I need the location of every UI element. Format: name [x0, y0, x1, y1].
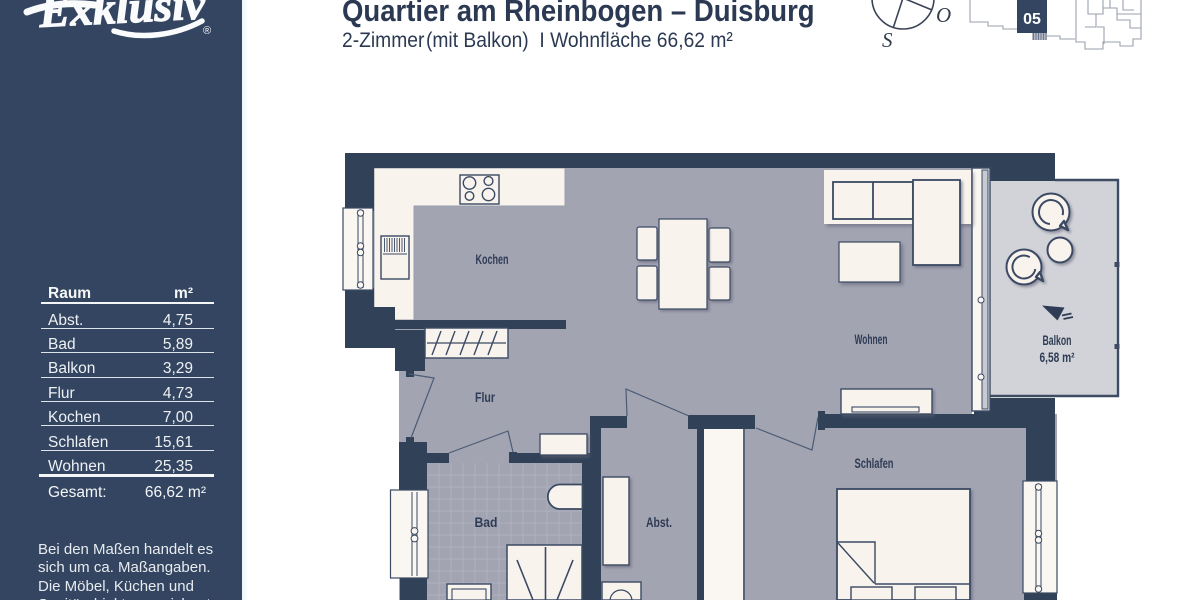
svg-text:Balkon: Balkon [1043, 333, 1072, 348]
svg-text:Abst.: Abst. [646, 514, 672, 530]
svg-text:O: O [936, 3, 951, 27]
svg-text:6,58 m²: 6,58 m² [1040, 350, 1075, 365]
svg-text:Kochen: Kochen [476, 251, 509, 267]
svg-text:Schlafen: Schlafen [855, 455, 894, 471]
svg-text:05: 05 [1023, 11, 1041, 28]
svg-text:Wohnen: Wohnen [855, 331, 888, 347]
svg-text:Flur: Flur [475, 389, 495, 405]
svg-text:S: S [882, 28, 893, 52]
svg-text:Bad: Bad [475, 514, 498, 530]
